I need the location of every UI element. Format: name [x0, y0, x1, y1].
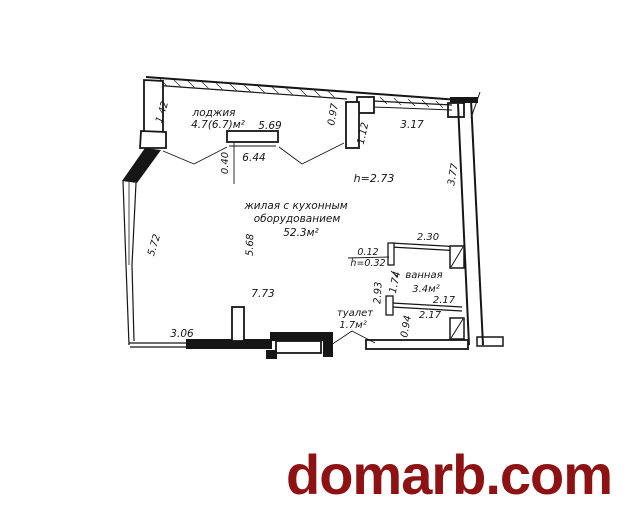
bathroom-label: ванная [405, 270, 442, 281]
living-room-label-1: жилая с кухонным [243, 200, 347, 212]
dim-3-77: 3.77 [446, 162, 461, 186]
dim-1-74: 1.74 [388, 270, 403, 294]
dim-0-12: 0.12 [357, 247, 378, 258]
toilet-door [450, 318, 464, 339]
dim-0-94: 0.94 [399, 315, 414, 339]
partition-stub [232, 307, 244, 341]
toilet-area: 1.7м² [339, 320, 366, 331]
niche-height: h=0.32 [350, 258, 385, 269]
top-exterior-wall [146, 77, 459, 100]
dim-2-93: 2.93 [372, 281, 384, 304]
ceiling-height: h=2.73 [354, 172, 395, 185]
bottom-wall [129, 307, 272, 349]
dim-3-06: 3.06 [170, 328, 194, 340]
dim-5-69: 5.69 [258, 120, 282, 132]
dim-5-68: 5.68 [245, 234, 257, 257]
dim-2-17-toilet: 2.17 [419, 310, 442, 321]
living-room-area: 52.3м² [283, 227, 319, 239]
left-exterior-wall [123, 181, 136, 345]
floor-plan-drawing: лоджия 4.7(6.7)м² 5.69 6.44 0.40 1.42 0.… [0, 0, 630, 515]
toilet-label: туалет [337, 308, 374, 319]
bathroom-area: 3.4м² [412, 284, 439, 295]
left-pier [122, 80, 166, 183]
watermark-text: domarb.com [286, 447, 612, 503]
dim-3-17: 3.17 [400, 119, 424, 131]
loggia-area: 4.7(6.7)м² [191, 119, 246, 131]
living-room-label-2: оборудованием [254, 213, 341, 225]
loggia-label: лоджия [192, 107, 236, 119]
floor-plan-page: лоджия 4.7(6.7)м² 5.69 6.44 0.40 1.42 0.… [0, 0, 630, 515]
dim-2-17-bath: 2.17 [433, 295, 456, 306]
dim-6-44: 6.44 [242, 152, 265, 164]
bathroom-door [450, 246, 464, 268]
dim-2-30: 2.30 [417, 232, 439, 243]
top-wall-hatching [160, 79, 443, 108]
entrance-doorway [266, 332, 333, 359]
dim-7-73: 7.73 [251, 288, 274, 300]
dim-5-72: 5.72 [146, 233, 163, 258]
dim-0-40: 0.40 [220, 152, 231, 174]
dim-0-97: 0.97 [326, 102, 341, 126]
loggia-sill [227, 131, 278, 146]
wall-break-tick [471, 92, 480, 118]
